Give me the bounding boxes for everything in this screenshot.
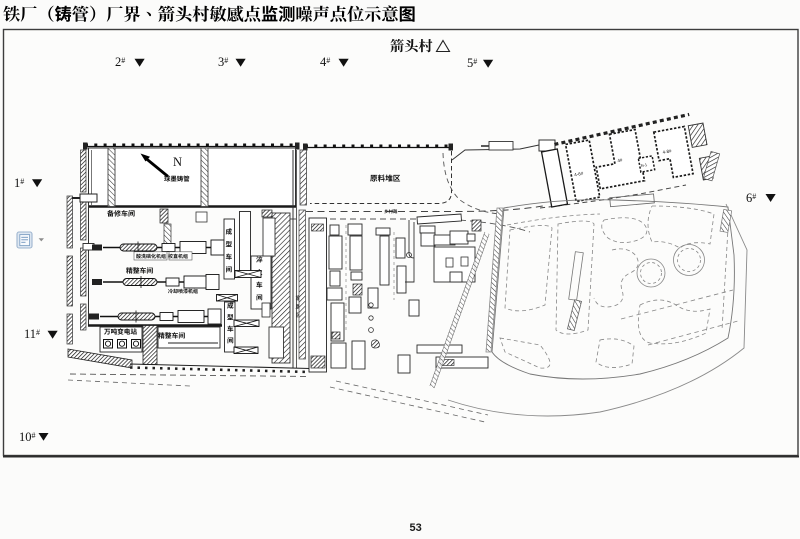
svg-text:N: N [173, 155, 182, 169]
svg-text:53: 53 [410, 522, 422, 534]
